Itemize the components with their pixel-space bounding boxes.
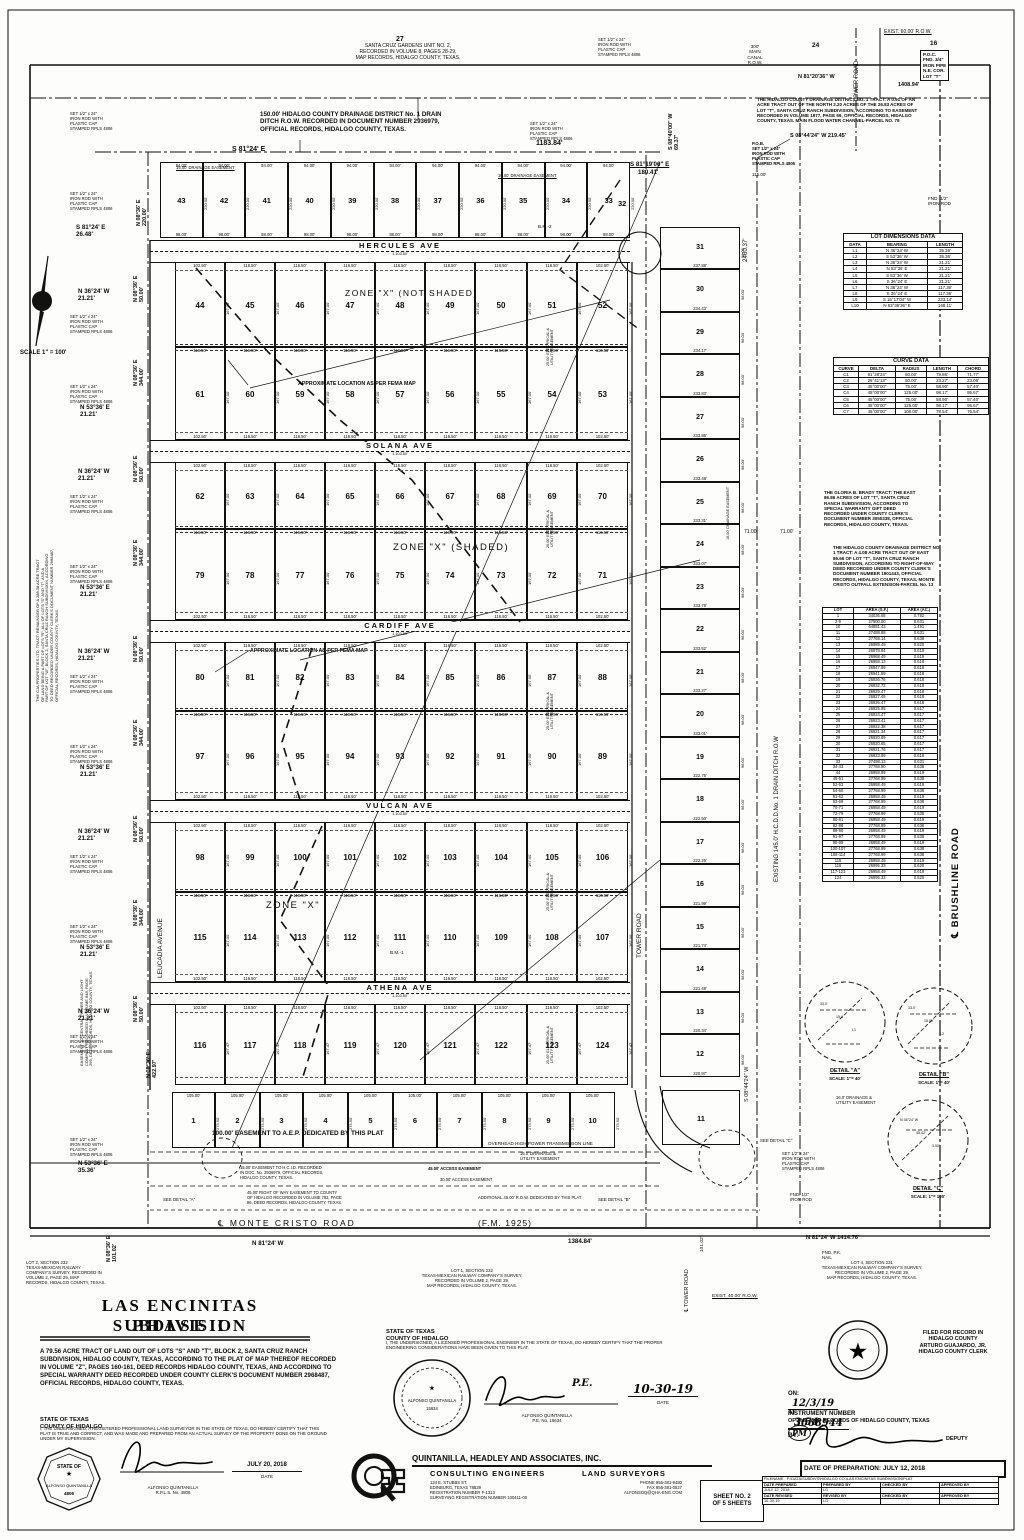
plat-annotation: N 08°36' E 422.97' — [146, 1014, 159, 1078]
lot-107: 107116.50'102.50'167.00' — [577, 892, 628, 982]
plat-annotation: N 53°36' E 21.21' — [80, 404, 110, 419]
lot-number: 113 — [276, 933, 324, 942]
deputy-by-label: BY: — [788, 1432, 799, 1440]
lot-35: 3594.00'98.00'220.00' — [502, 162, 545, 238]
lot-65: 65116.50'167.00' — [325, 462, 375, 529]
lot-number: 27 — [661, 414, 739, 421]
lot-number: 16 — [661, 881, 739, 888]
lot-number: 118 — [276, 1041, 324, 1050]
lot-areas-table-cell: 124 — [823, 876, 854, 882]
lot-number: 29 — [661, 329, 739, 336]
plat-annotation: 150.00' HIDALGO COUNTY DRAINAGE DISTRICT… — [260, 111, 525, 133]
lot-6: 6105.00'275.50' — [393, 1092, 437, 1148]
lot-2: 2105.00'275.50' — [215, 1092, 260, 1148]
lot-37: 3794.00'98.00'220.00' — [416, 162, 459, 238]
svg-text:STATE OF: STATE OF — [57, 1464, 81, 1470]
lot-116: 116102.50'167.47' — [175, 1004, 225, 1085]
plat-annotation: N 81°24' W 1414.76' — [806, 1235, 859, 1242]
lot-49: 49116.50'167.00' — [425, 262, 475, 347]
lot-64: 64116.50'167.00' — [275, 462, 325, 529]
engineer-seal: ★ ALFONSO QUINTANILLA 15634 — [392, 1356, 472, 1440]
lot-96: 96116.50'116.50'167.00' — [225, 711, 275, 800]
lot-114: 114116.50'116.50'167.00' — [225, 892, 275, 982]
lot-120: 120116.50'167.47' — [375, 1004, 425, 1085]
lot-number: 3 — [261, 1116, 302, 1125]
lot-number: 2 — [216, 1116, 259, 1125]
lot-3: 3105.00'275.50' — [260, 1092, 303, 1148]
company-addr: 124 E. STUBBS ST. EDINBURG, TEXAS 78539 … — [430, 1481, 527, 1501]
lot-number: 28 — [661, 371, 739, 378]
plat-annotation: EXIST. 40.00' R.O.W. — [712, 1294, 758, 1300]
plat-annotation: N 08°36' E 101.02' — [106, 1202, 119, 1262]
plat-annotation: 16.0' DRAINAGE & UTILITY EASEMENT — [520, 1152, 560, 1162]
revision-table-grid: FILENAME : F:\DATA\SUBDIVS\HIDALGO CO.\L… — [762, 1476, 999, 1505]
lot-number: 79 — [176, 571, 224, 580]
lot-32-number: 32 — [618, 200, 626, 209]
lot-number: 99 — [226, 853, 274, 862]
lot-44: 44102.50'167.00' — [175, 262, 225, 347]
plat-annotation: N 36°24' W 21.21' — [78, 288, 109, 303]
lot-number: 48 — [376, 301, 424, 310]
plat-annotation: ADDITIONAL 45.00' R.O.W. DEDICATED BY TH… — [478, 1196, 581, 1201]
plat-annotation: 115.00' — [752, 172, 766, 177]
lot-number: 73 — [476, 571, 526, 580]
lot-19: 19222.76'98.00' — [660, 737, 740, 780]
lot-number: 104 — [476, 853, 526, 862]
deputy-label: DEPUTY — [946, 1436, 968, 1442]
lot-number: 66 — [376, 492, 424, 501]
lot-number: 102 — [376, 853, 424, 862]
lot-101: 101116.50'167.00' — [325, 822, 375, 892]
lot-16: 16221.99'98.00' — [660, 864, 740, 907]
lot-61: 61116.50'102.50'167.00' — [175, 347, 225, 440]
revision-cell — [940, 1499, 999, 1505]
plat-label — [175, 708, 628, 709]
curve-data-table-cell: 45°00'00" — [859, 408, 896, 414]
lot-number: 22 — [661, 626, 739, 633]
revision-cell: 10-30-19 — [763, 1499, 822, 1505]
lot-number: 19 — [661, 754, 739, 761]
lot-25: 25233.31'98.00' — [660, 482, 740, 525]
lot-number: 9 — [528, 1116, 569, 1125]
lot-10: 10105.00'275.50' — [570, 1092, 615, 1148]
plat-annotation: ℄ BRUSHLINE ROAD — [950, 743, 961, 938]
lot-number: 23 — [661, 584, 739, 591]
plat-annotation: TOWER ROAD — [854, 30, 861, 102]
scale-note: SCALE 1" = 100' — [20, 350, 66, 357]
lot-number: 42 — [204, 196, 245, 205]
plat-annotation: THE HIDALGO COUNTY DRAINAGE DISTRICT NO.… — [757, 97, 992, 123]
lot-number: 112 — [326, 933, 374, 942]
plat-annotation: SANTA CRUZ GARDENS UNIT NO. 2, RECORDED … — [328, 44, 488, 62]
set-iron-rod-note: SET 1/2" x 24" IRON ROD WITH PLASTIC CAP… — [70, 315, 113, 335]
lot-number: 98 — [176, 853, 224, 862]
detail-scale: SCALE: 1"= 40' — [805, 1076, 885, 1081]
revision-cell: LG — [822, 1499, 881, 1505]
lot-number: 100 — [276, 853, 324, 862]
lot-number: 86 — [476, 673, 526, 682]
revision-cell — [881, 1499, 940, 1505]
lot-11: 11 — [662, 1090, 740, 1145]
plat-label — [175, 470, 628, 471]
lot-number: 70 — [578, 492, 627, 501]
detail-dim: 15.0' — [836, 1015, 844, 1019]
lot-102: 102116.50'167.00' — [375, 822, 425, 892]
lot-number: 74 — [426, 571, 474, 580]
street-name: ATHENA AVE — [320, 984, 480, 993]
company-ce: CONSULTING ENGINEERS — [430, 1470, 545, 1479]
lot-number: 116 — [176, 1041, 224, 1050]
engineer-signature — [478, 1370, 628, 1410]
plat-annotation: SEE DETAIL "A" — [163, 1197, 195, 1202]
plat-annotation: 16.0' DRAINAGE & UTILITY EASEMENT — [836, 1096, 876, 1106]
lot-57: 57116.50'116.50'167.00' — [375, 347, 425, 440]
lot-number: 109 — [476, 933, 526, 942]
street-length: 1,103.50' — [355, 252, 445, 256]
lot-number: 65 — [326, 492, 374, 501]
lot-number: 39 — [332, 196, 373, 205]
lot-4: 4105.00'275.50' — [303, 1092, 348, 1148]
plat-label — [175, 432, 628, 433]
plat-label — [175, 974, 628, 975]
lot-8: 8105.00'275.50' — [482, 1092, 527, 1148]
lot-number: 57 — [376, 390, 424, 399]
lot-93: 93116.50'116.50'167.00' — [375, 711, 425, 800]
lot-53: 53116.50'102.50'167.00' — [577, 347, 628, 440]
lot-dimensions-table-cell: 168.11' — [928, 303, 963, 309]
plat-annotation: 16 — [930, 40, 937, 48]
lot-number: 111 — [376, 933, 424, 942]
lot-number: 80 — [176, 673, 224, 682]
svg-text:ALFONSO QUINTANILLA: ALFONSO QUINTANILLA — [46, 1483, 92, 1488]
lot-number: 78 — [226, 571, 274, 580]
lot-number: 72 — [528, 571, 576, 580]
lot-29: 29234.17'98.00' — [660, 312, 740, 355]
lot-86: 86116.50'167.00' — [475, 642, 527, 711]
date-of-preparation: DATE OF PREPARATION: JULY 12, 2018 — [800, 1460, 1006, 1478]
lot-27: 27233.86'98.00' — [660, 397, 740, 440]
detail-dim: 3.00' — [932, 1144, 940, 1148]
lot-26: 26233.48'98.00' — [660, 439, 740, 482]
lot-dimensions-table-cell: L10 — [844, 303, 867, 309]
lot-63: 63116.50'167.00' — [225, 462, 275, 529]
lot-121: 121116.50'167.47' — [425, 1004, 475, 1085]
lot-91: 91116.50'116.50'167.00' — [475, 711, 527, 800]
utility-easement-label: 25.00' ELECTRICAL & UTILITY EASEMENT — [546, 309, 555, 385]
lot-89: 89116.50'102.50'167.00' — [577, 711, 628, 800]
lot-21: 21233.27'98.00' — [660, 652, 740, 695]
lot-17: 17222.25'98.00' — [660, 822, 740, 865]
lot-23: 23233.78'98.00' — [660, 567, 740, 610]
set-iron-rod-note: SET 1/2" x 24" IRON ROD WITH PLASTIC CAP… — [70, 1138, 113, 1158]
detail-dim: 33.0' — [908, 1006, 916, 1010]
plat-label — [175, 270, 628, 271]
lot-number: 58 — [326, 390, 374, 399]
plat-annotation: EXISTING 145.0' H.C.D.D.No. 1 DRAIN DITC… — [774, 582, 781, 882]
lot-number: 34 — [546, 196, 587, 205]
plat-annotation: 15.00' EASEMENT TO H.C.I.D. RECORDED IN … — [240, 1166, 323, 1180]
plat-annotation: N 36°24' W 21.21' — [78, 468, 109, 483]
lot-number: 43 — [161, 196, 202, 205]
lot-number: 75 — [376, 571, 424, 580]
lot-109: 109116.50'116.50'167.00' — [475, 892, 527, 982]
plat-annotation: 300' MAIN CANAL R.O.W. — [740, 44, 770, 66]
lot-number: 110 — [426, 933, 474, 942]
lot-110: 110116.50'116.50'167.00' — [425, 892, 475, 982]
plat-annotation: 1408.94' — [898, 82, 919, 88]
lot-number: 93 — [376, 752, 424, 761]
plat-label — [175, 350, 628, 351]
lot-34: 3494.00'98.00'220.00' — [545, 162, 588, 238]
lot-119: 119116.50'167.47' — [325, 1004, 375, 1085]
lot-number: 4 — [304, 1116, 347, 1125]
plat-annotation: SET 1/2" x 24" IRON ROD WITH PLASTIC CAP… — [530, 122, 573, 142]
revision-table: FILENAME : F:\DATA\SUBDIVS\HIDALGO CO.\L… — [762, 1476, 999, 1505]
plat-annotation: N 08°36' E 344.00' — [133, 326, 146, 386]
lot-66: 66116.50'167.00' — [375, 462, 425, 529]
lot-number: 35 — [503, 196, 544, 205]
plat-sheet: LAS ENCINITAS SUBDIVISION PHASE I A 79.5… — [0, 0, 1024, 1540]
lot-82: 82116.50'167.00' — [275, 642, 325, 711]
lot-39: 3994.00'98.00'220.00' — [331, 162, 374, 238]
lot-number: 49 — [426, 301, 474, 310]
surveyor-date: JULY 20, 2018 — [232, 1462, 302, 1472]
lot-100: 100116.50'167.00' — [275, 822, 325, 892]
curve-data-table: CURVE DATACURVEDELTARADIUSLENGTHCHORDC19… — [833, 357, 989, 415]
lot-number: 122 — [476, 1041, 526, 1050]
lot-98: 98102.50'167.00' — [175, 822, 225, 892]
detail-dim: 45.42' — [916, 1131, 926, 1135]
set-iron-rod-note: SET 1/2" x 24" IRON ROD WITH PLASTIC CAP… — [70, 675, 113, 695]
svg-text:★: ★ — [429, 1385, 435, 1392]
lot-106: 106102.50'167.00' — [577, 822, 628, 892]
lot-number: 84 — [376, 673, 424, 682]
lot-number: 63 — [226, 492, 274, 501]
lot-number: 106 — [578, 853, 627, 862]
lot-83: 83116.50'167.00' — [325, 642, 375, 711]
plat-annotation: LEUCADIA AVENUE — [157, 866, 165, 978]
lot-number: 10 — [571, 1116, 614, 1125]
lot-number: 14 — [661, 966, 739, 973]
curve-data-table-cell: 76.54' — [958, 408, 989, 414]
plat-annotation: S 81°24' E — [232, 146, 265, 154]
lot-70: 70102.50'167.00' — [577, 462, 628, 529]
lot-dimensions-table: LOT DIMENSIONS DATADATABEARINGLENGTHL1N … — [843, 233, 963, 310]
plat-annotation: N 81°24' W — [252, 1240, 283, 1247]
plat-annotation: 1384.84' — [568, 1238, 592, 1245]
lot-68: 68116.50'167.00' — [475, 462, 527, 529]
lot-number: 5 — [349, 1116, 392, 1125]
lot-number: 41 — [246, 196, 287, 205]
street-name: SOLANA AVE — [320, 442, 480, 451]
svg-text:4806: 4806 — [64, 1491, 75, 1496]
plat-annotation: 71.00' — [744, 530, 757, 536]
set-iron-rod-note: SET 1/2" x 24" IRON ROD WITH PLASTIC CAP… — [70, 565, 113, 585]
plat-label — [175, 895, 628, 896]
plat-annotation: LOT 4, SECTION 231 TEXAS-MEXICAN RAILWAY… — [772, 1260, 972, 1280]
company-contact: PHONE 956-381-9480 FAX 956-381-0527 ALFO… — [592, 1481, 682, 1496]
lot-5: 5105.00'275.50' — [348, 1092, 393, 1148]
lot-number: 46 — [276, 301, 324, 310]
lot-112: 112116.50'116.50'167.00' — [325, 892, 375, 982]
company-ls: LAND SURVEYORS — [582, 1470, 666, 1479]
lot-number: 53 — [578, 390, 627, 399]
set-iron-rod-note: SET 1/2" x 24" IRON ROD WITH PLASTIC CAP… — [70, 855, 113, 875]
lot-122: 122116.50'167.47' — [475, 1004, 527, 1085]
lot-118: 118116.50'167.47' — [275, 1004, 325, 1085]
plat-label — [175, 532, 628, 533]
lot-number: 17 — [661, 839, 739, 846]
engineer-name: ALFONSO QUINTANILLAP.E. No. 15634 — [492, 1408, 602, 1424]
lot-73: 73116.50'116.50'167.00' — [475, 529, 527, 620]
plat-annotation: 45.00' RIGHT OF WAY EASEMENT TO COUNTY O… — [247, 1191, 342, 1205]
svg-text:★: ★ — [849, 1341, 867, 1363]
lot-97: 97116.50'102.50'167.00' — [175, 711, 225, 800]
lot-number: 85 — [426, 673, 474, 682]
set-iron-rod-note: SET 1/2" x 24" IRON ROD WITH PLASTIC CAP… — [70, 385, 113, 405]
lot-52: 52102.50'167.00' — [577, 262, 628, 347]
plat-label — [175, 830, 628, 831]
lot-117: 117116.50'167.47' — [225, 1004, 275, 1085]
plat-annotation: EXIST. 60.00' R.O.W. — [884, 30, 932, 36]
lot-number: 114 — [226, 933, 274, 942]
lot-number: 71 — [578, 571, 627, 580]
lot-42: 4294.00'98.00'220.00' — [203, 162, 246, 238]
svg-text:ALFONSO QUINTANILLA: ALFONSO QUINTANILLA — [408, 1398, 457, 1403]
lot-number: 24 — [661, 541, 739, 548]
lot-48: 48116.50'167.00' — [375, 262, 425, 347]
curve-data-table-cell: 78.54' — [927, 408, 958, 414]
lot-number: 119 — [326, 1041, 374, 1050]
lot-number: 124 — [578, 1041, 627, 1050]
plat-annotation: SEE DETAIL "C" — [760, 1138, 792, 1143]
lot-62: 62102.50'167.00' — [175, 462, 225, 529]
plat-annotation: 180.41' — [638, 169, 658, 176]
plat-label — [175, 792, 628, 793]
lot-number: 94 — [326, 752, 374, 761]
lot-77: 77116.50'116.50'167.00' — [275, 529, 325, 620]
engineer-date-value: 10-30-19 — [628, 1382, 698, 1397]
lot-areas-table: LOTAREA (S.F.)AREA (AC.)134036.680.7822-… — [822, 607, 938, 882]
lot-95: 95116.50'116.50'167.00' — [275, 711, 325, 800]
plat-annotation: S 81°19'06" E — [630, 161, 669, 168]
lot-dimensions-table-title: LOT DIMENSIONS DATA — [844, 234, 963, 242]
lot-71: 71116.50'102.50'167.00' — [577, 529, 628, 620]
lot-number: 36 — [460, 196, 501, 205]
lot-55: 55116.50'116.50'167.00' — [475, 347, 527, 440]
plat-annotation: FND. 1/2" IRON ROD — [928, 196, 951, 207]
lot-20: 20233.01'98.00' — [660, 694, 740, 737]
company-name: QUINTANILLA, HEADLEY AND ASSOCIATES, INC… — [412, 1454, 712, 1467]
deputy-signature — [802, 1420, 952, 1452]
surveyor-name: ALFONSO QUINTANILLAR.P.L.S. No. 4806 — [118, 1480, 228, 1496]
plat-annotation: TOWER ROAD — [636, 866, 644, 958]
lot-number: 95 — [276, 752, 324, 761]
lot-number: 11 — [663, 1114, 739, 1123]
lot-number: 97 — [176, 752, 224, 761]
plat-annotation: N 08°36' E 344.00' — [133, 506, 146, 566]
plat-annotation: N 53°36' E 21.21' — [80, 584, 110, 599]
surveyor-date-label: DATE — [232, 1474, 302, 1479]
set-iron-rod-note: SET 1/2" x 24" IRON ROD WITH PLASTIC CAP… — [70, 192, 113, 212]
plat-label — [175, 650, 628, 651]
lot-number: 91 — [476, 752, 526, 761]
utility-easement-label: 25.00' ELECTRICAL & UTILITY EASEMENT — [546, 673, 555, 749]
detail-title: DETAIL "A" — [805, 1068, 885, 1074]
lot-18: 18222.50'98.00' — [660, 779, 740, 822]
plat-annotation: P.O.B. SET 1/2" x 24" IRON ROD WITH PLAS… — [752, 142, 795, 167]
lot-76: 76116.50'116.50'167.00' — [325, 529, 375, 620]
lot-47: 47116.50'167.00' — [325, 262, 375, 347]
plat-label — [175, 889, 628, 890]
lot-12: 12220.97'98.00' — [660, 1034, 740, 1077]
street-length: 1,103.50' — [355, 452, 445, 456]
set-iron-rod-note: SET 1/2" x 24" IRON ROD WITH PLASTIC CAP… — [70, 925, 113, 945]
lot-number: 21 — [661, 669, 739, 676]
lot-number: 13 — [661, 1009, 739, 1016]
plat-annotation: N 08°36' E 344.00' — [133, 686, 146, 746]
plat-annotation: N 08°36' E 50.00' — [133, 426, 146, 482]
lot-number: 1 — [173, 1116, 214, 1125]
street-name: CARDIFF AVE — [320, 622, 480, 631]
lot-115: 115116.50'102.50'167.00' — [175, 892, 225, 982]
engineer-pe-label: P.E. — [572, 1378, 592, 1390]
lot-number: 81 — [226, 673, 274, 682]
plat-label — [175, 714, 628, 715]
lot-74: 74116.50'116.50'167.00' — [425, 529, 475, 620]
street-length: 1,103.50' — [355, 812, 445, 816]
svg-text:15634: 15634 — [426, 1406, 438, 1411]
plat-annotation: P.O.C. FND. 3/4" IRON PIPE N.E. COR. LOT… — [920, 50, 949, 81]
detail-dim: L1 — [852, 1028, 856, 1032]
lot-number: 12 — [661, 1051, 739, 1058]
company-logo — [348, 1448, 412, 1512]
lot-number: 121 — [426, 1041, 474, 1050]
plat-annotation: THE CJA PROPERTIES LTD. TRACT: REMAINDER… — [36, 534, 60, 702]
plat-annotation: S 81°24' E 26.48' — [76, 224, 105, 239]
plat-label — [175, 526, 628, 527]
lot-30: 30234.43'98.00' — [660, 269, 740, 312]
lot-46: 46116.50'167.00' — [275, 262, 325, 347]
lot-104: 104116.50'167.00' — [475, 822, 527, 892]
utility-easement-label: 25.00' ELECTRICAL & UTILITY EASEMENT — [546, 1007, 555, 1083]
lot-number: 20 — [661, 711, 739, 718]
plat-annotation: LOT 1, SECTION 232 TEXAS-MEXICAN RAILWAY… — [372, 1268, 572, 1288]
lot-number: 56 — [426, 390, 474, 399]
plat-annotation: 24 — [812, 42, 819, 50]
plat-annotation: N 08°36' E 50.00' — [133, 966, 146, 1022]
utility-easement-label: 25.00' ELECTRICAL & UTILITY EASEMENT — [546, 491, 555, 567]
detail-title: DETAIL "B" — [894, 1072, 974, 1078]
plat-annotation: SEE DETAIL "B" — [598, 1197, 630, 1202]
lot-78: 78116.50'116.50'167.00' — [225, 529, 275, 620]
lot-7: 7105.00'275.50' — [437, 1092, 482, 1148]
lot-number: 47 — [326, 301, 374, 310]
plat-annotation: S 08°44'24" W 219.45' — [790, 133, 846, 139]
lot-79: 79116.50'102.50'167.00' — [175, 529, 225, 620]
street-length: 1,103.50' — [355, 994, 445, 998]
lot-80: 80102.50'167.00' — [175, 642, 225, 711]
lot-92: 92116.50'116.50'167.00' — [425, 711, 475, 800]
lot-9: 9105.00'275.50' — [527, 1092, 570, 1148]
lot-number: 107 — [578, 933, 627, 942]
engineer-cert: I, THE UNDERSIGNED, A LICENSED PROFESSIO… — [386, 1340, 666, 1350]
lot-number: 38 — [375, 196, 416, 205]
lot-13: 13220.34'98.00' — [660, 992, 740, 1035]
plat-annotation: N 36°24' W 21.21' — [78, 648, 109, 663]
lot-14: 14221.48'98.00' — [660, 949, 740, 992]
lot-number: 77 — [276, 571, 324, 580]
